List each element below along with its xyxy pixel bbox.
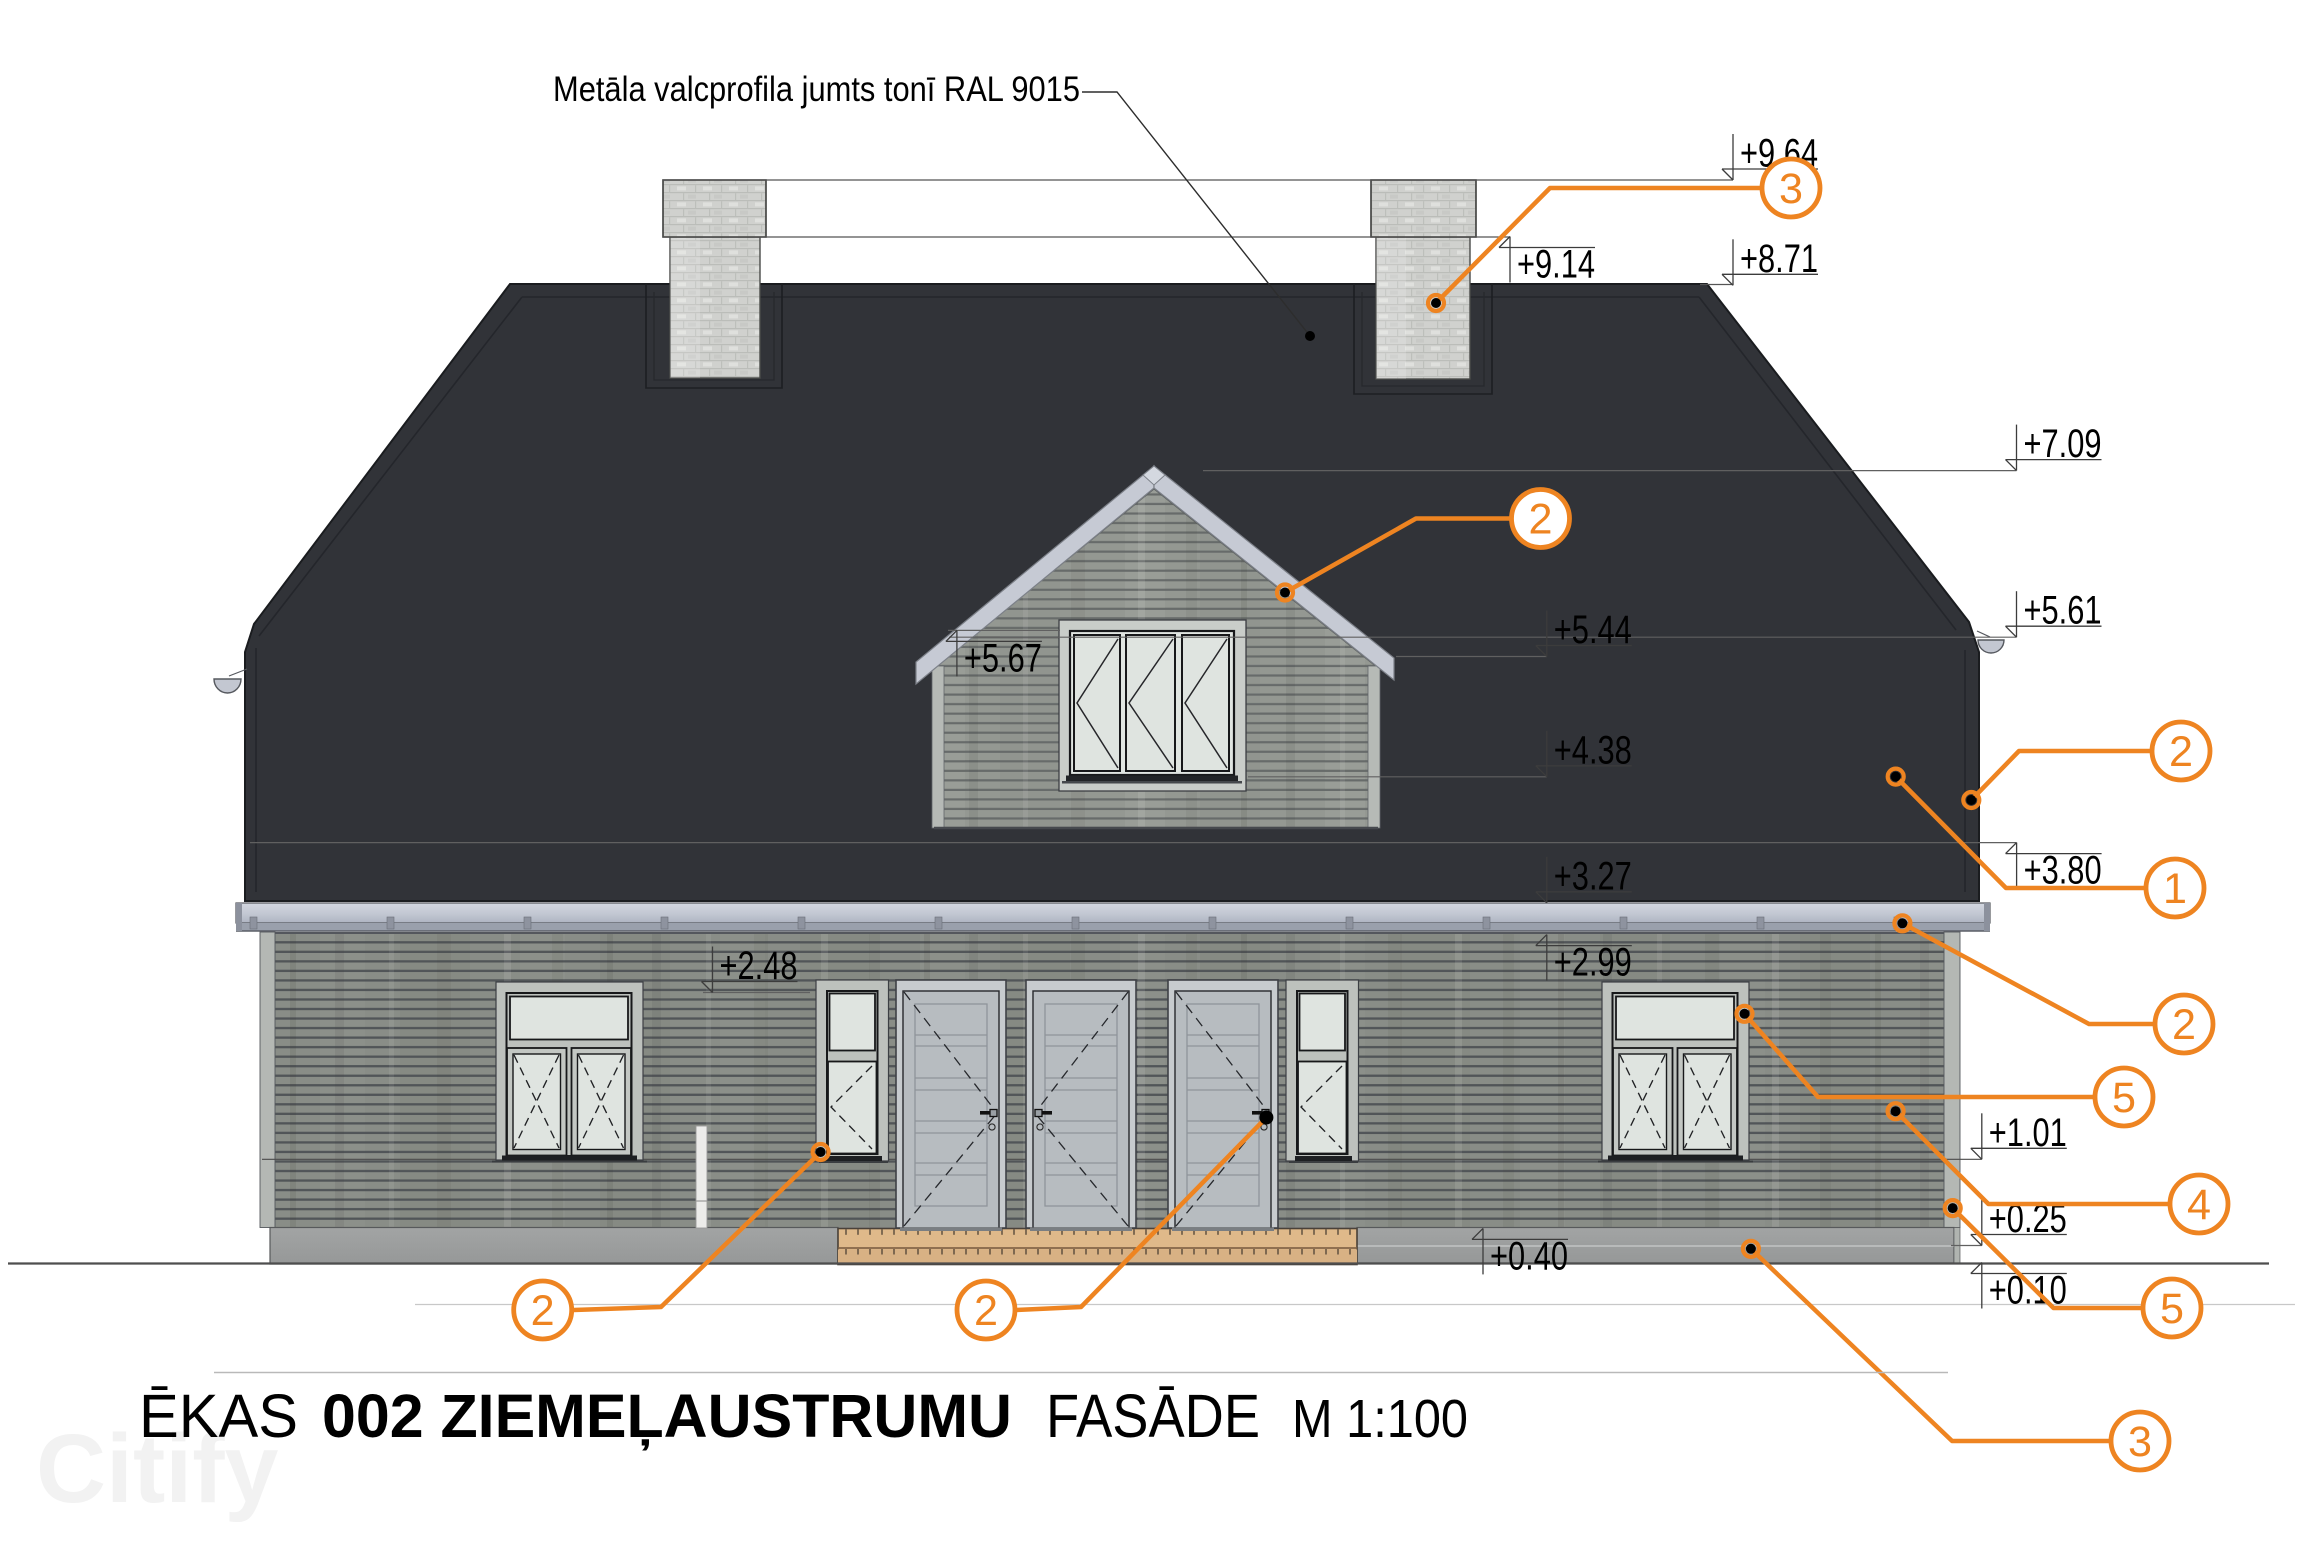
svg-text:+5.44: +5.44 [1554, 608, 1632, 652]
svg-text:4: 4 [2187, 1181, 2211, 1229]
svg-text:+1.01: +1.01 [1989, 1111, 2067, 1155]
svg-text:5: 5 [2112, 1074, 2136, 1122]
svg-text:3: 3 [1779, 165, 1803, 213]
svg-text:+9.14: +9.14 [1517, 243, 1595, 287]
svg-text:+8.71: +8.71 [1740, 237, 1818, 281]
svg-text:+4.38: +4.38 [1554, 728, 1632, 772]
svg-text:+0.40: +0.40 [1490, 1234, 1568, 1278]
svg-text:2: 2 [2172, 1001, 2196, 1049]
svg-text:5: 5 [2160, 1285, 2184, 1333]
svg-text:1: 1 [2163, 865, 2187, 913]
svg-text:+5.61: +5.61 [2024, 589, 2102, 633]
svg-text:+2.99: +2.99 [1554, 941, 1632, 985]
svg-text:+3.27: +3.27 [1554, 854, 1632, 898]
svg-text:M 1:100: M 1:100 [1292, 1389, 1468, 1449]
svg-text:2: 2 [2169, 728, 2193, 776]
svg-text:2: 2 [1529, 496, 1553, 544]
svg-text:ĒKAS: ĒKAS [139, 1382, 298, 1450]
svg-text:FASĀDE: FASĀDE [1046, 1382, 1260, 1450]
svg-text:+7.09: +7.09 [2024, 422, 2102, 466]
svg-text:+2.48: +2.48 [720, 944, 798, 988]
svg-text:+5.67: +5.67 [964, 636, 1042, 680]
svg-text:2: 2 [531, 1287, 555, 1335]
svg-text:Metāla valcprofila jumts tonī: Metāla valcprofila jumts tonī RAL 9015 [553, 70, 1080, 109]
svg-text:3: 3 [2128, 1418, 2152, 1466]
svg-text:2: 2 [974, 1287, 998, 1335]
svg-text:002 ZIEMEĻAUSTRUMU: 002 ZIEMEĻAUSTRUMU [322, 1382, 1012, 1451]
